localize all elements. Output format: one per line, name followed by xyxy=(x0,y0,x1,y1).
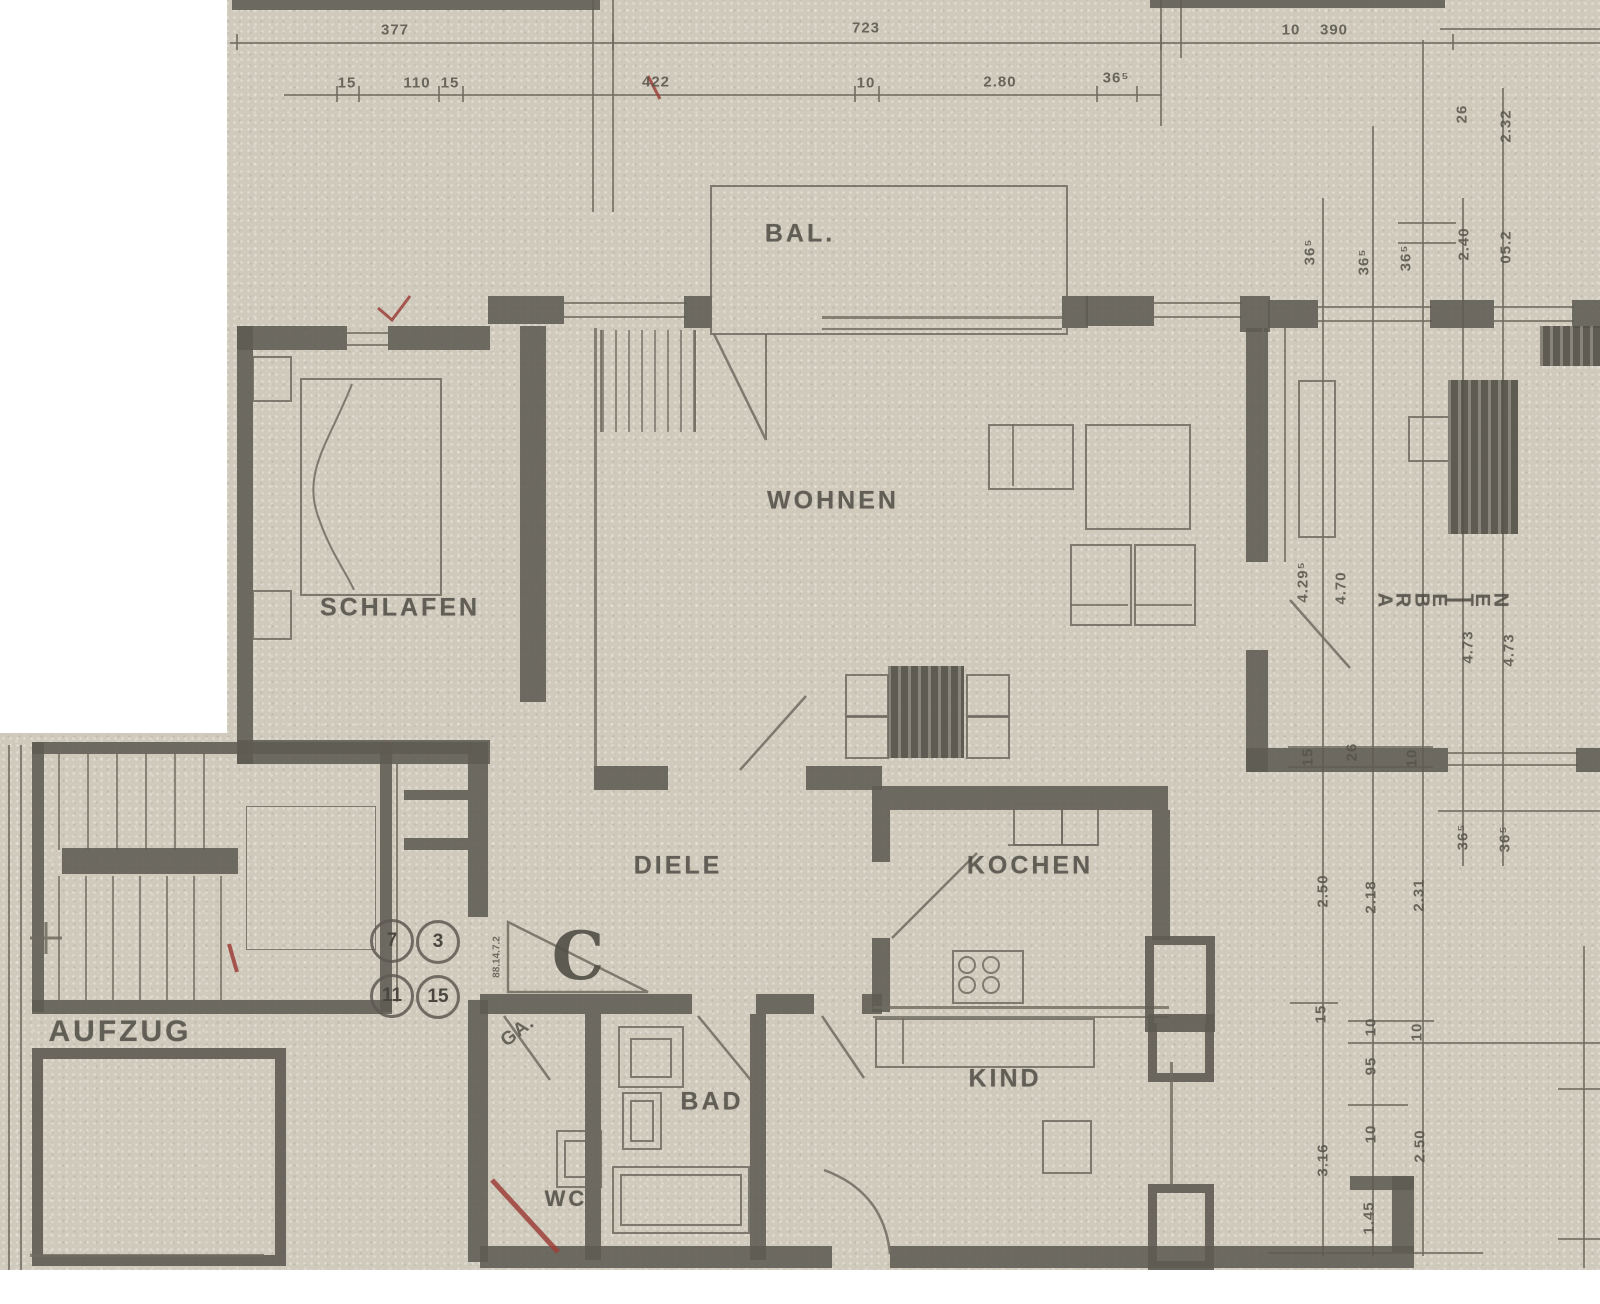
circled-number: 7 xyxy=(370,919,414,963)
circled-number: 3 xyxy=(416,920,460,964)
dim-label: 26 xyxy=(1344,743,1361,762)
dim-label: 110 xyxy=(403,75,430,92)
circled-number-text: 7 xyxy=(387,930,398,952)
room-label-schlafen: SCHLAFEN xyxy=(320,594,480,623)
room-label-kind: KIND xyxy=(968,1065,1041,1094)
dim-label: 10 xyxy=(1282,22,1301,39)
dim-label: 2.80 xyxy=(983,74,1016,91)
dim-label: 15 xyxy=(441,75,460,92)
dim-label: 26 xyxy=(1454,105,1471,124)
dim-label: 10 xyxy=(1363,1125,1380,1144)
dim-label: 36⁵ xyxy=(1398,245,1415,272)
room-label-wc: WC xyxy=(545,1186,588,1212)
dim-label: 36⁵ xyxy=(1356,249,1373,276)
room-label-bad: BAD xyxy=(680,1088,743,1117)
dim-label: 2.18 xyxy=(1363,880,1380,913)
dim-label: 4.73 xyxy=(1501,633,1518,666)
dim-label: 05.2 xyxy=(1498,230,1515,263)
floor-plan-scan: BAL. WOHNEN SCHLAFEN DIELE KOCHEN BAD WC… xyxy=(0,0,1600,1304)
dim-label: 4.29⁵ xyxy=(1295,561,1312,602)
dim-label: 4.73 xyxy=(1460,630,1477,663)
circled-number-text: 15 xyxy=(427,986,448,1008)
plan-linework xyxy=(0,0,1600,1304)
dim-label: 2.31 xyxy=(1411,878,1428,911)
circled-number-text: 3 xyxy=(433,931,444,953)
dim-label: 10 xyxy=(857,75,876,92)
entry-dimension-note: 88.14.7.2 xyxy=(492,936,503,978)
dim-label: 10 xyxy=(1404,749,1421,768)
dim-label: 4.70 xyxy=(1333,571,1350,604)
dim-label: 3.16 xyxy=(1315,1143,1332,1176)
dim-label: 36⁵ xyxy=(1455,824,1472,851)
dim-label: 2.50 xyxy=(1315,874,1332,907)
dim-label: 15 xyxy=(1300,748,1317,767)
dim-label: 36⁵ xyxy=(1302,239,1319,266)
scan-margin xyxy=(0,0,227,733)
dim-label: 10 xyxy=(1409,1023,1426,1042)
dim-label: 2.32 xyxy=(1498,109,1515,142)
room-label-aufzug: AUFZUG xyxy=(49,1015,192,1049)
scan-margin xyxy=(0,1270,1600,1304)
dim-label: 36⁵ xyxy=(1103,70,1130,87)
circled-number: 11 xyxy=(370,974,414,1018)
dim-label: 390 xyxy=(1320,22,1348,39)
dim-label: 2.50 xyxy=(1412,1129,1429,1162)
dim-label: 422 xyxy=(642,74,670,91)
dim-label: 723 xyxy=(852,20,880,37)
room-label-diele: DIELE xyxy=(634,852,723,881)
dim-label: 15 xyxy=(1313,1005,1330,1024)
circled-number: 15 xyxy=(416,975,460,1019)
dim-label: 2.40 xyxy=(1456,227,1473,260)
room-label-wohnen: WOHNEN xyxy=(767,487,899,516)
dim-label: 10 xyxy=(1363,1018,1380,1037)
room-label-bal: BAL. xyxy=(765,220,835,249)
dim-label: 95 xyxy=(1363,1057,1380,1076)
dim-label: 377 xyxy=(381,22,409,39)
section-letter: C xyxy=(552,917,605,995)
room-label-kochen: KOCHEN xyxy=(967,852,1093,881)
room-label-arbeiten: ARBEITEN xyxy=(1375,591,1509,614)
dim-label: 36⁵ xyxy=(1497,826,1514,853)
dim-label: 1.45 xyxy=(1361,1201,1378,1234)
dim-label: 15 xyxy=(338,75,357,92)
circled-number-text: 11 xyxy=(382,985,402,1007)
